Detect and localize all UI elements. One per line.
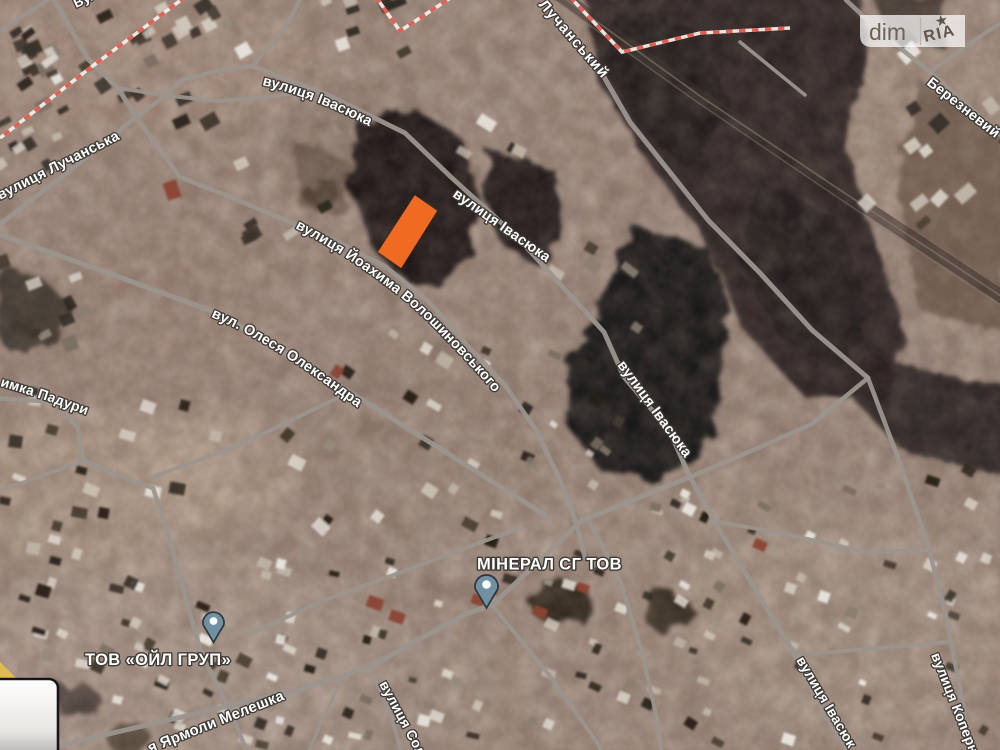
svg-text:ТОВ «ОЙЛ ГРУП»: ТОВ «ОЙЛ ГРУП» <box>85 650 231 669</box>
svg-text:dim: dim <box>869 19 906 45</box>
svg-text:МІНЕРАЛ СГ ТОВ: МІНЕРАЛ СГ ТОВ <box>477 556 622 574</box>
